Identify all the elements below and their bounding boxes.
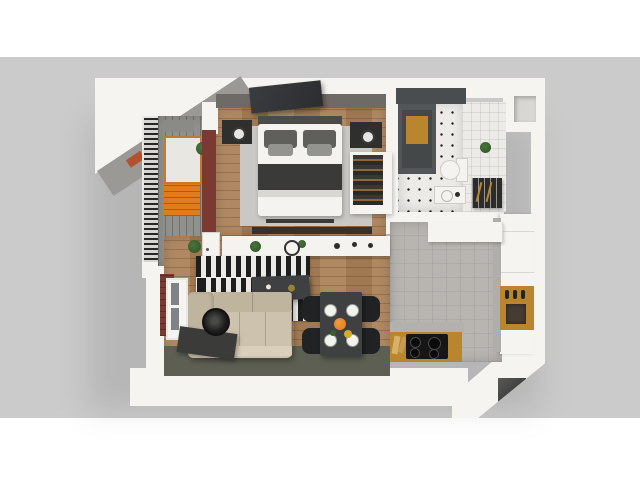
table-lamp-right (361, 130, 375, 144)
decor-item-1 (334, 243, 340, 249)
sink-basin (441, 190, 453, 202)
window-pane-1 (171, 283, 179, 305)
green-bottle (330, 330, 336, 336)
cushion-right (307, 144, 332, 156)
balcony-plant-2 (188, 240, 201, 253)
background-bottom-band (0, 418, 640, 480)
kitchen-wall-cabinet (428, 222, 503, 242)
apartment-floorplan-render (0, 0, 640, 480)
wine-bottle-1 (505, 290, 509, 299)
yellow-plate (344, 330, 352, 338)
sideboard (222, 236, 390, 256)
wardrobe-shelf (350, 152, 392, 214)
wardrobe-contents (353, 155, 383, 205)
background-top-band (0, 0, 640, 57)
wooden-spoon-2 (486, 182, 493, 202)
place-setting-2 (346, 304, 359, 317)
fruit-bowl (334, 318, 346, 330)
bedroom-desk (252, 227, 372, 234)
foot-bench (266, 219, 334, 223)
double-bed (258, 116, 342, 216)
hall-tall-cabinet (500, 214, 534, 354)
place-setting-3 (324, 334, 337, 347)
blanket (258, 164, 342, 190)
dining-chair-1 (302, 296, 322, 322)
wood-bath-mat (406, 116, 428, 144)
coffee-table-decor-white (266, 284, 271, 289)
decor-item-3 (368, 243, 373, 248)
coffee-table-decor-gold (288, 285, 295, 292)
window-pane-2 (171, 308, 179, 330)
wine-bottle-3 (521, 290, 525, 299)
bathroom-plant (480, 142, 491, 153)
rug-row-1 (196, 256, 310, 277)
toilet-bowl (440, 160, 460, 180)
dish-rack (472, 178, 502, 208)
dining-chair-3 (360, 296, 380, 322)
coffee-machine (506, 304, 526, 324)
corner-niche (503, 86, 545, 132)
wine-niche (500, 286, 534, 330)
balcony-outdoor-rug (164, 184, 200, 216)
decor-wheel (284, 240, 300, 256)
shower (398, 104, 436, 174)
blanket-fold (258, 190, 342, 197)
door-handle (206, 248, 209, 251)
decor-item-2 (352, 242, 357, 247)
burner-1 (410, 337, 421, 348)
faucet (455, 192, 460, 197)
floor-fan (202, 308, 230, 336)
kitchen-base-cabinet-oak (390, 332, 462, 362)
wine-bottle-2 (513, 290, 517, 299)
place-setting-1 (324, 304, 337, 317)
corner-niche-opening (514, 96, 536, 122)
cushion-left (268, 144, 293, 156)
table-lamp-left (232, 127, 246, 141)
dining-chair-4 (360, 328, 380, 354)
balcony-planter (164, 120, 194, 132)
wooden-spoon (476, 182, 483, 202)
dining-chair-2 (302, 328, 322, 354)
cooktop (406, 334, 448, 359)
sofa-back-cushions (214, 292, 292, 312)
bathroom-north-wall-face (396, 88, 466, 104)
nightstand-left (222, 120, 252, 144)
lounge-chair (164, 136, 202, 184)
bathroom-sink (434, 186, 466, 204)
dining-table (320, 292, 362, 356)
nightstand-right (350, 122, 382, 148)
burner-4 (429, 349, 439, 359)
sideboard-plant-1 (250, 241, 261, 252)
burner-3 (410, 348, 420, 358)
maroon-wall (202, 130, 216, 234)
